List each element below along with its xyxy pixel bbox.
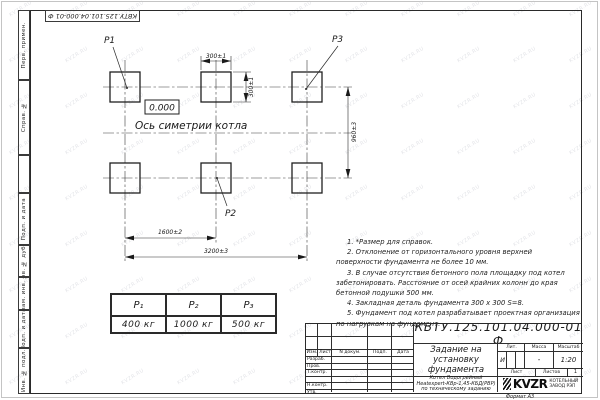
tb-title-line3: фундамента	[428, 365, 484, 375]
tb-scale-label: Масштаб	[554, 344, 583, 351]
point-label-p1: P1	[104, 36, 115, 46]
load-table-header-p1: P₁	[111, 294, 166, 316]
tb-sheet-label: Лист	[498, 368, 535, 376]
load-table: P₁ P₂ P₃ 400 кг 1000 кг 500 кг	[110, 293, 277, 334]
tb-title-line2: установку	[433, 355, 479, 365]
tb-col-izm: Изм.	[306, 349, 318, 356]
kvzr-logo-icon	[503, 378, 511, 390]
tb-mass-label: Масса	[525, 344, 553, 351]
kvzr-org-name: КОТЕЛЬНЫЙ ЗАВОД РЭП	[549, 379, 578, 389]
format-label: Формат А3	[480, 394, 560, 400]
tb-product: Котел Водогрейный Heatexpert-КВр-1,45-КБ…	[414, 377, 498, 392]
tb-col-dokum: N докум.	[332, 349, 368, 356]
symmetry-axis-label: Ось симетрии котла	[135, 120, 247, 132]
load-table-value-p2: 1000 кг	[166, 316, 221, 333]
note-1: 1. *Размер для справок.	[336, 237, 580, 247]
note-4: 4. Закладная деталь фундамента 300 х 300…	[336, 298, 580, 308]
tb-sheets-label: Листов	[536, 368, 567, 376]
load-table-header-p2: P₂	[166, 294, 221, 316]
load-table-value-p1: 400 кг	[111, 316, 166, 333]
tb-lit-label: Лит.	[498, 344, 525, 351]
dim-col-spacing-text: 1600±2	[158, 229, 182, 236]
tb-col-data: Дата	[392, 349, 414, 356]
load-table-value-p3: 500 кг	[221, 316, 276, 333]
dim-top-width-text: 300±1	[206, 53, 226, 60]
tb-line	[306, 336, 414, 337]
leader-p2	[217, 178, 227, 206]
tb-line	[515, 351, 516, 368]
tb-sheets-value: 1	[568, 368, 583, 376]
note-3: 3. В случае отсутствия бетонного пола пл…	[336, 268, 580, 299]
tb-title: Задание на установку фундамента	[414, 344, 498, 376]
tb-lit-value: И	[498, 351, 507, 368]
title-block: Изм. Лист N докум. Подп. Дата Разраб. Пр…	[305, 323, 582, 394]
tb-row-utv: Утв.	[307, 389, 332, 395]
leader-dot-p3	[305, 88, 307, 90]
load-table-header-p3: P₃	[221, 294, 276, 316]
notes-block: 1. *Размер для справок. 2. Отклонение от…	[336, 237, 580, 329]
tb-product-line3: по техническому заданию	[421, 387, 491, 393]
point-label-p2: P2	[225, 209, 236, 219]
tb-scale-value: 1:20	[554, 351, 583, 368]
tb-mass-value: -	[525, 351, 553, 368]
dim-total-span-text: 3200±3	[204, 248, 228, 255]
dim-side-height-text: 300±1	[248, 77, 255, 97]
elevation-value: 0.000	[149, 104, 175, 114]
kvzr-logo-text: KVZR	[513, 377, 548, 391]
tb-col-list: Лист	[318, 349, 332, 356]
drawing-sheet: KVZR.RUKVZR.RUKVZR.RUKVZR.RUKVZR.RUKVZR.…	[0, 0, 600, 400]
dim-row-spacing-text: 960±3	[351, 122, 358, 142]
point-label-p3: P3	[332, 35, 343, 45]
note-2: 2. Отклонение от горизонтального уровня …	[336, 247, 580, 267]
tb-doc-number: КВТУ.125.101.04.000-01 Ф	[414, 324, 583, 343]
kvzr-org-name-line2: ЗАВОД РЭП	[549, 384, 578, 389]
leader-dot-p1	[126, 87, 128, 89]
leader-dot-p2	[216, 177, 218, 179]
tb-org-cell: KVZR КОТЕЛЬНЫЙ ЗАВОД РЭП	[498, 377, 583, 392]
tb-title-line1: Задание на	[430, 345, 482, 355]
tb-col-podp: Подп.	[368, 349, 392, 356]
